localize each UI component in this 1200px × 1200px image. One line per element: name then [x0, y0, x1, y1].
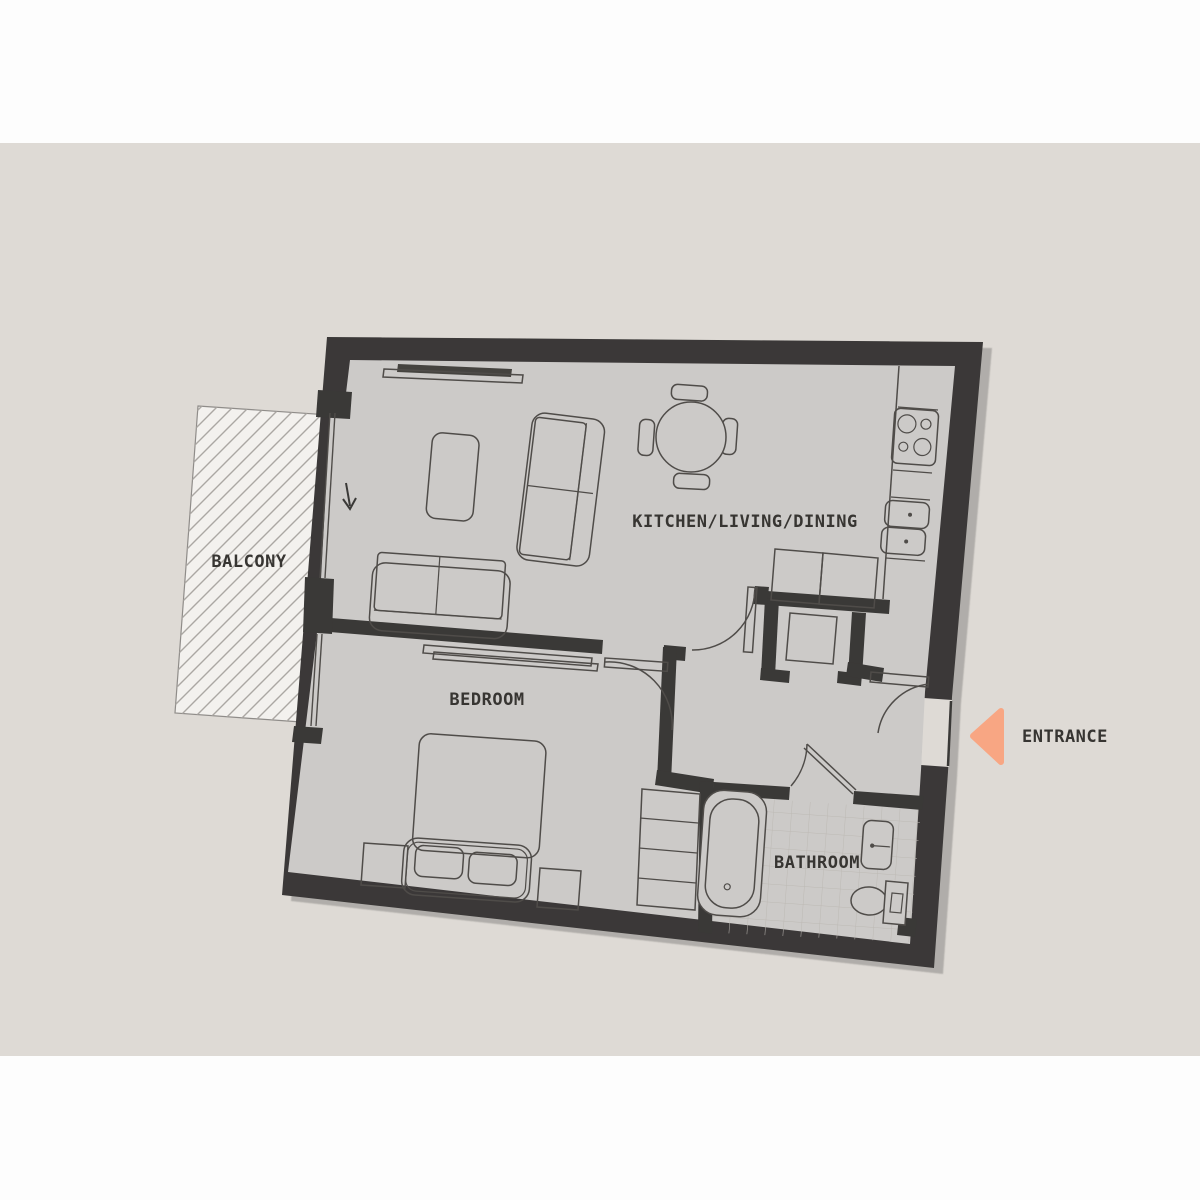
dining-table: [656, 402, 726, 472]
balcony-label: BALCONY: [211, 552, 286, 572]
basin-bowl: [861, 820, 894, 870]
toilet-cistern: [883, 881, 908, 925]
entrance-label: ENTRANCE: [1022, 727, 1108, 747]
basin: [861, 820, 894, 870]
kitchen-living-dining-label: KITCHEN/LIVING/DINING: [632, 512, 857, 532]
bathroom-label: BATHROOM: [774, 853, 860, 873]
window-pier-mid: [303, 577, 334, 634]
floorplan-page: ENTRANCE KITCHEN/LIVING/DINING BEDROOM B…: [0, 0, 1200, 1200]
bathtub: [696, 789, 768, 918]
window-pier-top: [316, 390, 352, 419]
floorplan-canvas: ENTRANCE KITCHEN/LIVING/DINING BEDROOM B…: [0, 0, 1200, 1200]
window-pier-bottom: [292, 726, 323, 744]
bedroom-label: BEDROOM: [449, 690, 524, 710]
